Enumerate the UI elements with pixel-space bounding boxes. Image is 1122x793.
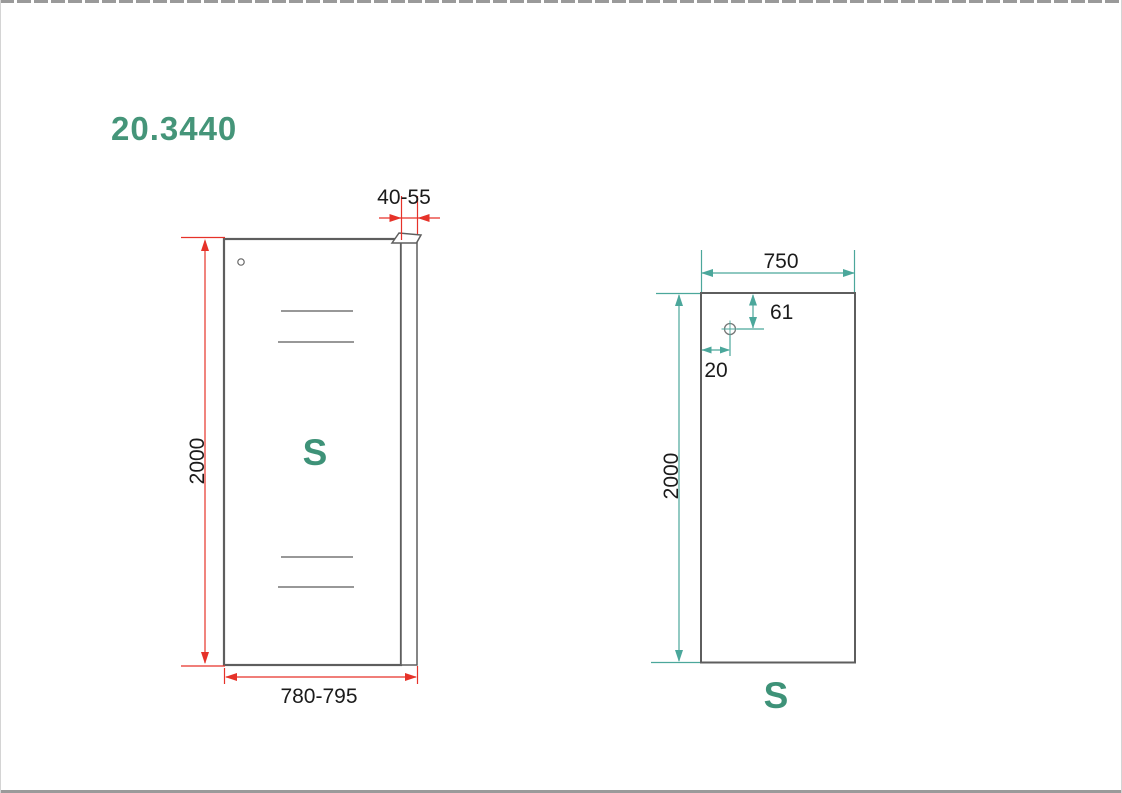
arrow-right-icon: [843, 269, 855, 277]
arrow-left-icon: [418, 214, 430, 222]
front-view: S 2000 780-795: [181, 186, 440, 708]
arrow-up-icon: [201, 239, 209, 251]
glass-dim-height-value: 2000: [660, 453, 683, 500]
front-profile-top-cap: [392, 233, 421, 243]
arrow-up-icon: [675, 294, 683, 306]
front-dim-height-value: 2000: [186, 438, 209, 485]
glass-panel-label: S: [764, 675, 789, 716]
arrow-left-icon: [701, 269, 713, 277]
glass-view: S 750 2000: [651, 250, 855, 716]
glass-dim-height: 2000: [651, 294, 700, 663]
front-panel-label: S: [303, 432, 328, 473]
glass-dim-hole-top-value: 61: [770, 301, 793, 324]
front-wall-profile: [401, 242, 417, 665]
front-hole: [238, 259, 244, 265]
arrow-left-icon: [225, 673, 237, 681]
drawing-page: 20.3440 S 2: [0, 0, 1122, 793]
arrow-down-icon: [201, 652, 209, 664]
glass-dim-hole-side-value: 20: [704, 359, 727, 382]
glass-dim-width-value: 750: [763, 250, 798, 273]
arrow-right-icon: [405, 673, 417, 681]
front-dim-profile-value: 40-55: [377, 186, 431, 209]
arrow-right-icon: [390, 214, 402, 222]
technical-drawing: 20.3440 S 2: [0, 0, 1122, 793]
arrow-down-icon: [675, 650, 683, 662]
glass-dim-width: 750: [701, 250, 855, 292]
front-dim-width-value: 780-795: [280, 685, 357, 708]
front-dim-width: 780-795: [225, 666, 418, 708]
front-dim-height: 2000: [181, 238, 225, 667]
article-number-title: 20.3440: [111, 110, 237, 147]
front-dim-profile: 40-55: [377, 186, 440, 240]
